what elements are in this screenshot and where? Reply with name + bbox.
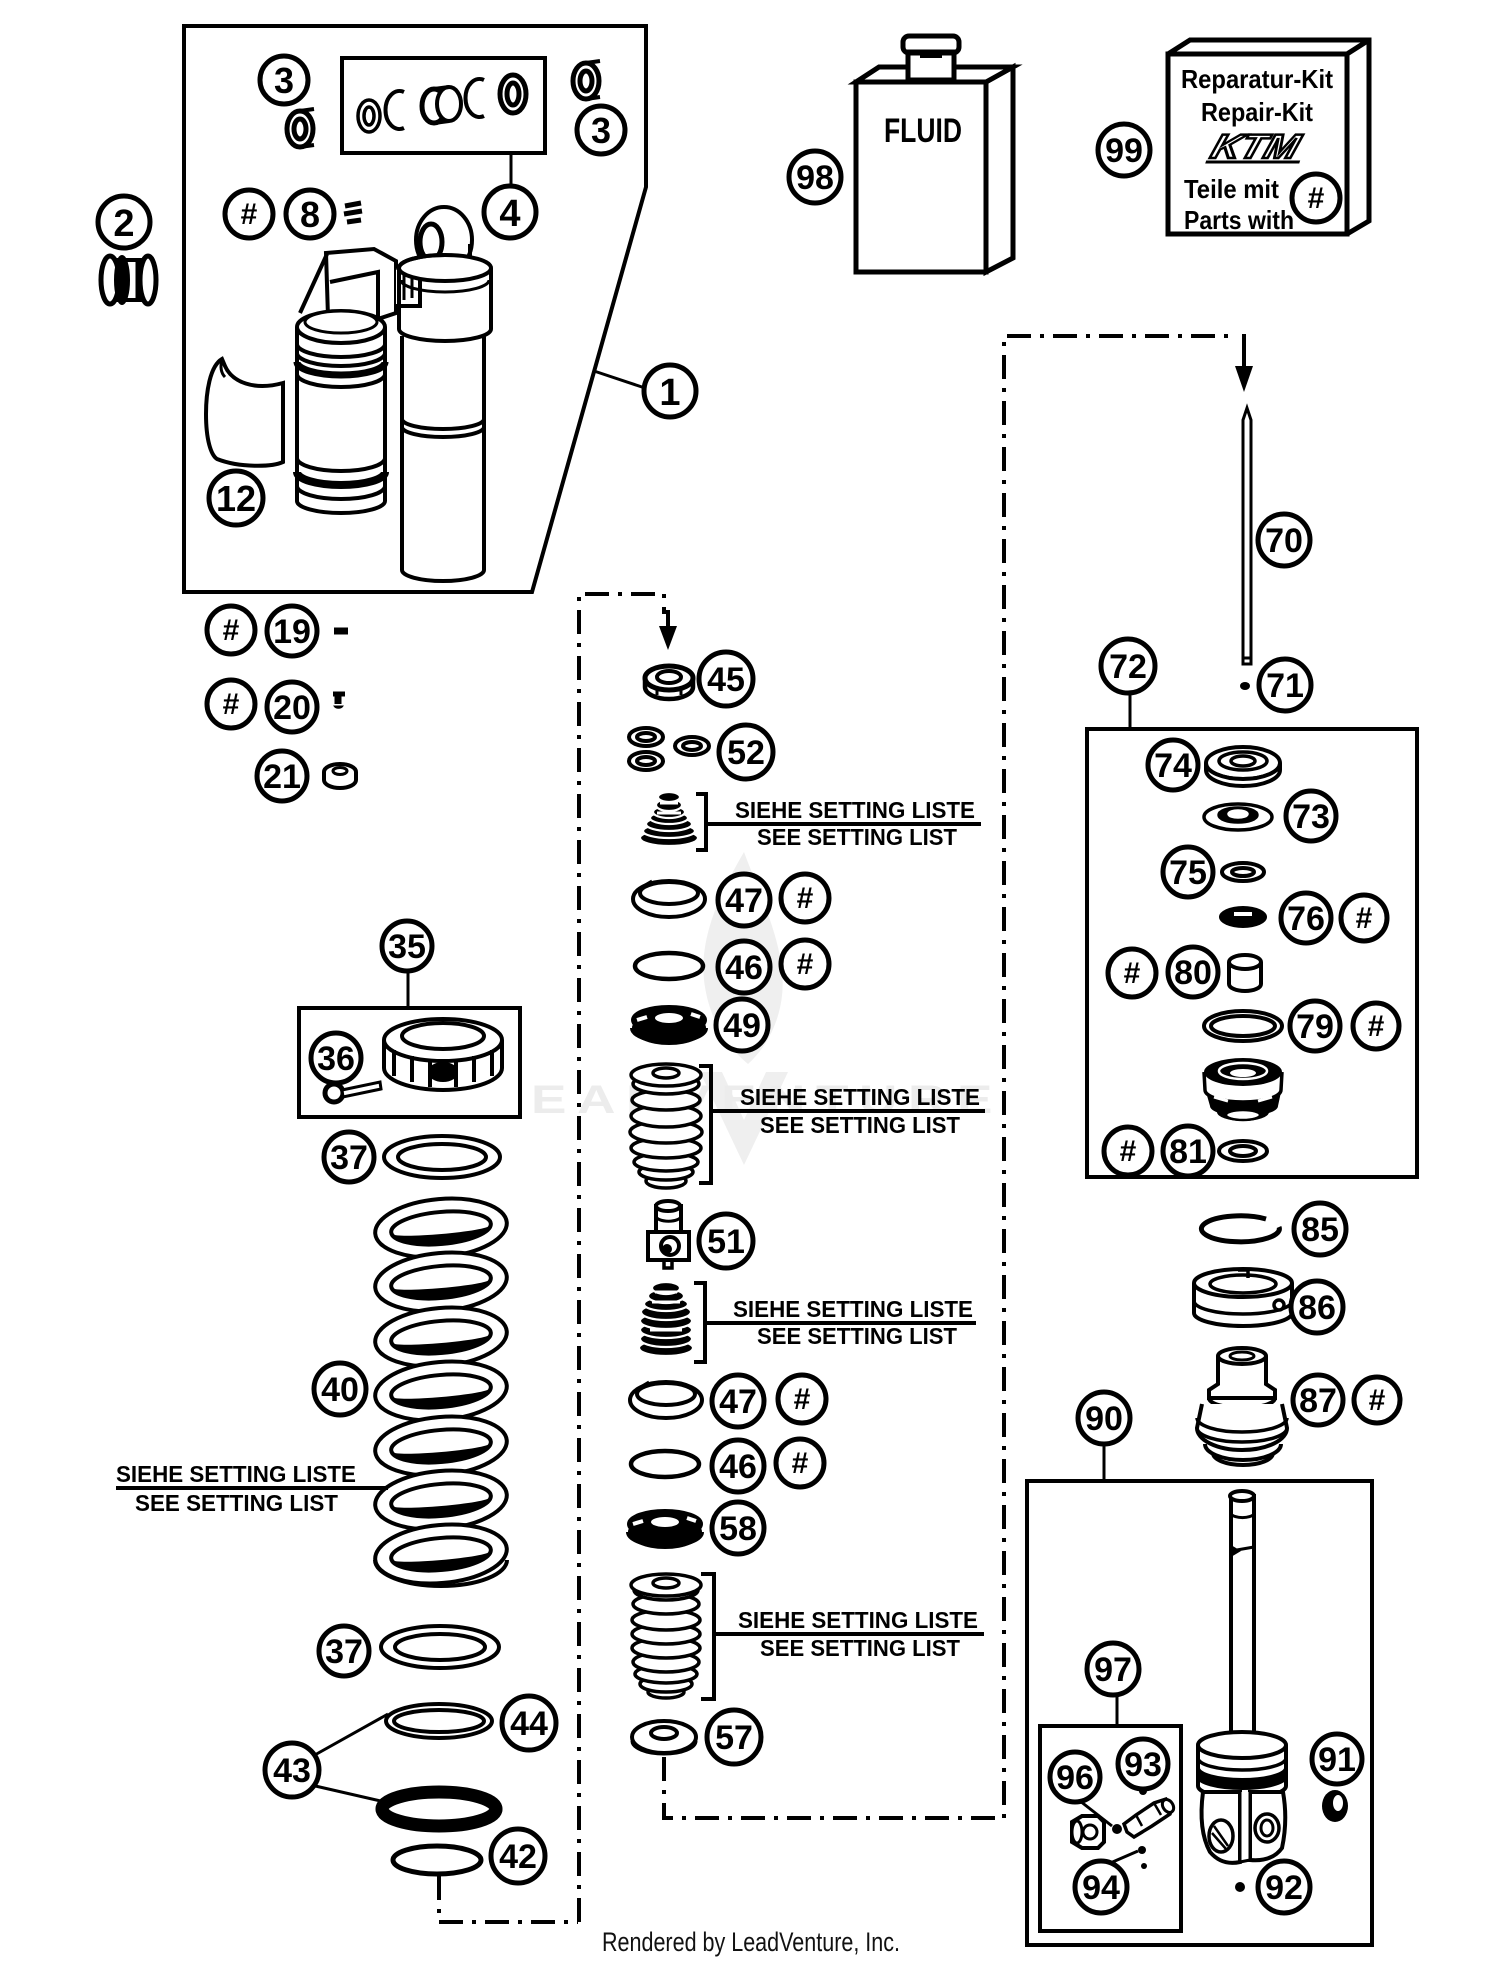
svg-text:SIEHE SETTING LISTE: SIEHE SETTING LISTE bbox=[733, 1296, 973, 1322]
svg-text:98: 98 bbox=[796, 159, 834, 197]
svg-text:#: # bbox=[1368, 1010, 1385, 1043]
svg-text:SIEHE SETTING LISTE: SIEHE SETTING LISTE bbox=[738, 1607, 978, 1633]
svg-text:3: 3 bbox=[274, 60, 294, 101]
svg-text:73: 73 bbox=[1292, 798, 1330, 836]
svg-text:52: 52 bbox=[727, 734, 765, 772]
svg-text:40: 40 bbox=[321, 1371, 359, 1409]
svg-text:2: 2 bbox=[113, 203, 134, 245]
svg-text:#: # bbox=[1308, 182, 1325, 215]
svg-text:49: 49 bbox=[723, 1007, 761, 1045]
svg-text:SIEHE SETTING LISTE: SIEHE SETTING LISTE bbox=[740, 1084, 980, 1110]
svg-text:47: 47 bbox=[719, 1383, 757, 1421]
svg-text:90: 90 bbox=[1085, 1400, 1123, 1438]
svg-text:SIEHE SETTING LISTE: SIEHE SETTING LISTE bbox=[116, 1461, 356, 1487]
svg-text:85: 85 bbox=[1301, 1211, 1339, 1249]
svg-text:93: 93 bbox=[1124, 1746, 1162, 1784]
svg-text:51: 51 bbox=[707, 1223, 745, 1261]
svg-text:81: 81 bbox=[1169, 1133, 1207, 1171]
svg-text:58: 58 bbox=[719, 1510, 757, 1548]
svg-text:12: 12 bbox=[216, 478, 256, 519]
svg-text:Reparatur-Kit: Reparatur-Kit bbox=[1181, 64, 1333, 94]
svg-text:44: 44 bbox=[510, 1705, 548, 1743]
svg-text:86: 86 bbox=[1298, 1289, 1336, 1327]
svg-text:57: 57 bbox=[715, 1719, 753, 1757]
svg-text:19: 19 bbox=[273, 613, 311, 651]
svg-text:#: # bbox=[223, 688, 240, 721]
svg-text:35: 35 bbox=[388, 928, 426, 966]
svg-text:Rendered by LeadVenture, Inc.: Rendered by LeadVenture, Inc. bbox=[602, 1927, 900, 1957]
svg-text:Teile mit: Teile mit bbox=[1184, 174, 1279, 204]
svg-text:#: # bbox=[241, 198, 258, 231]
svg-text:#: # bbox=[223, 614, 240, 647]
svg-text:80: 80 bbox=[1174, 954, 1212, 992]
svg-text:99: 99 bbox=[1105, 132, 1143, 170]
svg-text:91: 91 bbox=[1318, 1741, 1356, 1779]
svg-text:42: 42 bbox=[499, 1838, 537, 1876]
svg-text:46: 46 bbox=[719, 1448, 757, 1486]
svg-text:37: 37 bbox=[330, 1139, 368, 1177]
svg-text:#: # bbox=[792, 1447, 809, 1480]
svg-text:45: 45 bbox=[707, 661, 745, 699]
svg-text:#: # bbox=[1369, 1384, 1386, 1417]
svg-text:87: 87 bbox=[1299, 1382, 1337, 1420]
svg-text:#: # bbox=[797, 882, 814, 915]
svg-text:37: 37 bbox=[325, 1633, 363, 1671]
svg-text:94: 94 bbox=[1082, 1869, 1120, 1907]
svg-text:#: # bbox=[797, 948, 814, 981]
svg-text:72: 72 bbox=[1109, 648, 1147, 686]
svg-text:4: 4 bbox=[499, 193, 520, 235]
svg-text:92: 92 bbox=[1265, 1869, 1303, 1907]
svg-text:#: # bbox=[1124, 957, 1141, 990]
svg-text:Repair-Kit: Repair-Kit bbox=[1201, 97, 1313, 127]
svg-text:79: 79 bbox=[1296, 1008, 1334, 1046]
svg-text:3: 3 bbox=[591, 110, 611, 151]
svg-text:46: 46 bbox=[725, 949, 763, 987]
svg-text:47: 47 bbox=[725, 882, 763, 920]
svg-text:#: # bbox=[1120, 1135, 1137, 1168]
svg-text:FLUID: FLUID bbox=[884, 112, 962, 150]
svg-text:96: 96 bbox=[1056, 1759, 1094, 1797]
svg-text:76: 76 bbox=[1287, 900, 1325, 938]
svg-text:75: 75 bbox=[1169, 854, 1207, 892]
svg-text:SEE SETTING LIST: SEE SETTING LIST bbox=[135, 1490, 338, 1516]
svg-text:71: 71 bbox=[1266, 667, 1304, 705]
svg-text:43: 43 bbox=[273, 1752, 311, 1790]
svg-text:KTM: KTM bbox=[1206, 128, 1305, 166]
svg-text:SEE SETTING LIST: SEE SETTING LIST bbox=[757, 824, 957, 850]
svg-text:97: 97 bbox=[1094, 1651, 1132, 1689]
svg-text:8: 8 bbox=[300, 194, 320, 235]
svg-text:#: # bbox=[794, 1383, 811, 1416]
svg-text:20: 20 bbox=[273, 689, 311, 727]
svg-text:21: 21 bbox=[263, 758, 301, 796]
svg-text:SEE SETTING LIST: SEE SETTING LIST bbox=[757, 1323, 957, 1349]
svg-text:#: # bbox=[1356, 902, 1373, 935]
svg-text:Parts with: Parts with bbox=[1184, 205, 1294, 235]
svg-text:SEE SETTING LIST: SEE SETTING LIST bbox=[760, 1112, 960, 1138]
svg-text:1: 1 bbox=[659, 372, 680, 414]
svg-text:74: 74 bbox=[1154, 747, 1192, 785]
svg-text:70: 70 bbox=[1265, 522, 1303, 560]
svg-text:36: 36 bbox=[317, 1040, 355, 1078]
svg-text:SIEHE SETTING LISTE: SIEHE SETTING LISTE bbox=[735, 797, 975, 823]
svg-text:SEE SETTING LIST: SEE SETTING LIST bbox=[760, 1635, 960, 1661]
